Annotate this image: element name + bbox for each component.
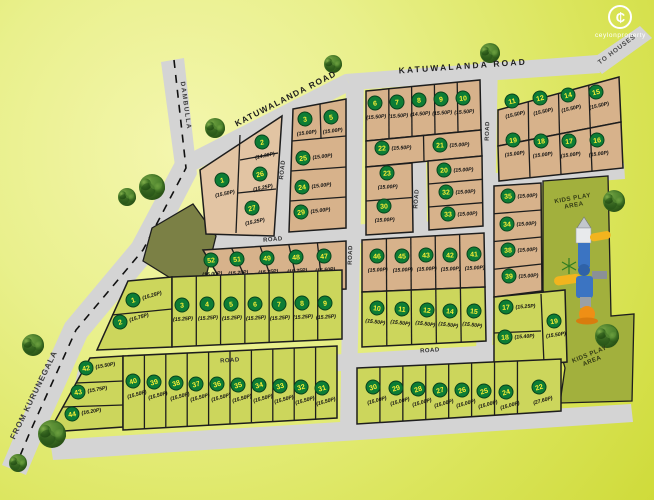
tree bbox=[22, 334, 44, 356]
svg-text:5: 5 bbox=[229, 301, 233, 308]
svg-text:18: 18 bbox=[537, 138, 546, 146]
brand-name: ceylonproperty bbox=[595, 32, 646, 39]
svg-text:14: 14 bbox=[446, 308, 455, 316]
svg-text:8: 8 bbox=[300, 300, 304, 307]
svg-text:9: 9 bbox=[323, 300, 327, 307]
block-west-column: 3(15.00P)5(15.00P)25(15.00P)24(15.00P)29… bbox=[289, 99, 346, 232]
svg-text:30: 30 bbox=[380, 203, 388, 210]
svg-text:20: 20 bbox=[440, 167, 448, 174]
svg-text:33: 33 bbox=[444, 211, 452, 218]
tree bbox=[205, 118, 225, 138]
svg-text:29: 29 bbox=[297, 209, 306, 217]
tree bbox=[139, 174, 165, 200]
plot-size-label: (15.00P) bbox=[378, 184, 398, 191]
svg-text:17: 17 bbox=[565, 138, 574, 146]
plot-size-label: (15.00P) bbox=[518, 273, 538, 280]
road-label: ROAD bbox=[485, 121, 492, 141]
svg-text:45: 45 bbox=[398, 253, 406, 260]
plot-size-label: (15.50P) bbox=[391, 145, 411, 152]
road-label: ROAD bbox=[348, 245, 355, 265]
svg-text:48: 48 bbox=[292, 254, 300, 262]
plot-size-label: (15.00P) bbox=[375, 217, 395, 224]
svg-text:25: 25 bbox=[299, 155, 308, 163]
svg-text:3: 3 bbox=[180, 302, 184, 309]
plot-size-label: (15.00P) bbox=[368, 267, 388, 274]
svg-text:10: 10 bbox=[459, 95, 467, 103]
svg-text:24: 24 bbox=[298, 184, 307, 192]
svg-text:41: 41 bbox=[470, 251, 478, 258]
block-midcenter-tan: 46(15.00P)45(15.00P)43(15.00P)42(15.00P)… bbox=[362, 233, 485, 292]
svg-text:16: 16 bbox=[593, 137, 602, 145]
svg-text:42: 42 bbox=[446, 252, 454, 259]
svg-text:35: 35 bbox=[504, 193, 512, 200]
plot-size-label: (15.00P) bbox=[517, 247, 537, 254]
block-midcenter-green: 10(15.50P)11(15.50P)12(15.50P)14(15.50P)… bbox=[362, 287, 486, 347]
svg-text:22: 22 bbox=[378, 145, 386, 152]
svg-text:9: 9 bbox=[439, 96, 444, 103]
plot-size-label: (15.00P) bbox=[453, 167, 473, 174]
svg-text:42: 42 bbox=[82, 365, 91, 373]
svg-text:43: 43 bbox=[74, 389, 83, 397]
site-plan: 2(14.30P)26(15.25P)1(15.50P)27(15.25P)3(… bbox=[0, 0, 654, 500]
svg-text:32: 32 bbox=[442, 189, 450, 196]
svg-text:11: 11 bbox=[398, 306, 406, 314]
plot-size-label: (15.00P) bbox=[455, 189, 475, 196]
plot-size-label: (15.00P) bbox=[393, 267, 413, 274]
svg-text:51: 51 bbox=[233, 256, 241, 264]
tree bbox=[38, 420, 66, 448]
plot-size-label: (15.00P) bbox=[441, 266, 461, 273]
plot-size-label: (15.00P) bbox=[417, 266, 437, 273]
plot-size-label: (15.00P) bbox=[516, 221, 536, 228]
svg-text:15: 15 bbox=[470, 308, 479, 316]
svg-text:34: 34 bbox=[503, 221, 511, 228]
svg-text:10: 10 bbox=[373, 305, 382, 313]
svg-text:4: 4 bbox=[205, 301, 209, 308]
block-center-right: 20(15.00P)32(15.00P)33(15.00P) bbox=[428, 156, 483, 230]
svg-text:43: 43 bbox=[422, 252, 430, 259]
svg-text:7: 7 bbox=[277, 301, 281, 308]
svg-text:23: 23 bbox=[383, 170, 391, 177]
brand-logo-icon: ₵ bbox=[608, 5, 632, 29]
svg-text:6: 6 bbox=[253, 301, 257, 308]
plot-size-label: (15.00P) bbox=[449, 142, 469, 149]
block-east-column: 35(15.00P)34(15.00P)38(15.00P)39(15.00P) bbox=[494, 183, 542, 297]
svg-text:47: 47 bbox=[320, 253, 328, 261]
plot-size-label: (15.00P) bbox=[457, 211, 477, 218]
block-east-green: 17(15.25P)18(15.40P)19(15.50P) bbox=[494, 290, 567, 368]
tree bbox=[595, 324, 619, 348]
svg-text:39: 39 bbox=[505, 273, 513, 280]
tree bbox=[603, 190, 625, 212]
svg-text:8: 8 bbox=[417, 97, 422, 104]
brand-logo: ₵ ceylonproperty bbox=[595, 5, 646, 39]
plot-size-label: (15.00P) bbox=[465, 265, 485, 272]
plot-size-label: (15.00P) bbox=[517, 193, 537, 200]
tree bbox=[9, 454, 27, 472]
block-mid-green-row: 3(15.25P)4(15.25P)5(15.25P)6(15.25P)7(15… bbox=[172, 270, 342, 347]
svg-text:6: 6 bbox=[373, 100, 378, 107]
svg-text:17: 17 bbox=[502, 304, 510, 312]
svg-text:7: 7 bbox=[395, 99, 400, 106]
svg-text:21: 21 bbox=[436, 142, 444, 149]
svg-text:52: 52 bbox=[207, 257, 215, 265]
svg-text:19: 19 bbox=[509, 137, 518, 145]
svg-text:46: 46 bbox=[373, 253, 381, 260]
block-center-left: 23(15.00P)30(15.00P) bbox=[366, 163, 413, 235]
site-plan-svg: 2(14.30P)26(15.25P)1(15.50P)27(15.25P)3(… bbox=[0, 0, 654, 500]
svg-text:49: 49 bbox=[263, 255, 271, 263]
svg-text:38: 38 bbox=[504, 247, 512, 254]
svg-text:19: 19 bbox=[550, 318, 559, 326]
svg-text:12: 12 bbox=[423, 307, 432, 315]
tree bbox=[118, 188, 136, 206]
svg-text:18: 18 bbox=[501, 334, 509, 342]
svg-text:44: 44 bbox=[68, 411, 77, 419]
